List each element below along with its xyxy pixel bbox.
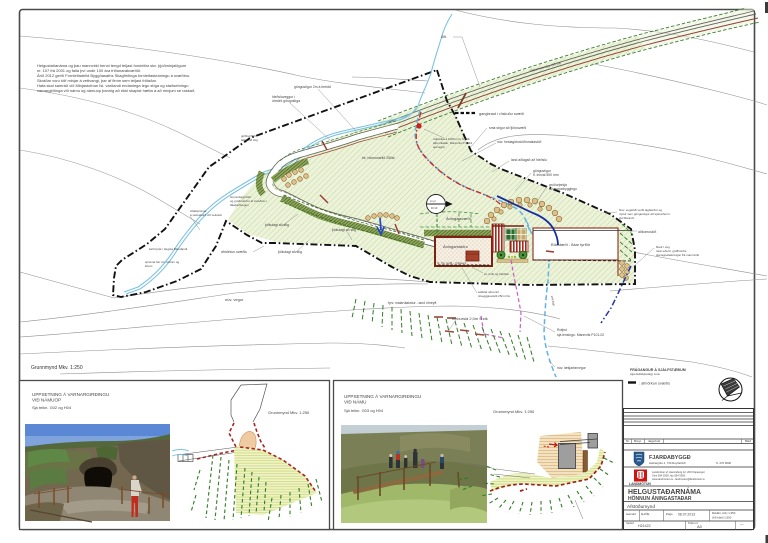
svg-text:sv. timb og hleðsla: sv. timb og hleðsla <box>484 271 509 276</box>
svg-text:lútum: lútum <box>145 264 153 268</box>
svg-text:LANDMÓTUN: LANDMÓTUN <box>629 481 651 486</box>
svg-text:sjá Mannvit: sjá Mannvit <box>619 216 634 220</box>
svg-text:Áningarstaður: Áningarstaður <box>443 244 469 249</box>
svg-text:Hafnargötu 2, 730 Reyðarfirði: Hafnargötu 2, 730 Reyðarfirði <box>649 460 686 465</box>
svg-text:Áningarsvæði: Áningarsvæði <box>446 216 471 221</box>
svg-text:Nr.: Nr. <box>626 439 630 443</box>
svg-text:Sjá teikn. G03 og H04: Sjá teikn. G03 og H04 <box>344 408 384 413</box>
svg-text:N: 7to nx45 - 4 6tww4: N: 7to nx45 - 4 6tww4 <box>437 261 466 265</box>
svg-text:timburslá 2,0m 5 stk: timburslá 2,0m 5 stk <box>452 316 488 321</box>
svg-text:dags/ívaf: dags/ívaf <box>648 439 660 443</box>
svg-text:Breyt.: Breyt. <box>634 439 642 443</box>
svg-text:(A3-blað) 1:500: (A3-blað) 1:500 <box>712 515 732 520</box>
svg-text:útveggjasvæði 25cm frá: útveggjasvæði 25cm frá <box>478 293 510 298</box>
svg-text:smá stígur að fjörusvæði: smá stígur að fjörusvæði <box>489 125 526 130</box>
svg-text:: afmörkun svæðis: : afmörkun svæðis <box>639 381 670 386</box>
svg-text:www.landmotun.is - landmotun: www.landmotun.is - landmotun@landmotun.i… <box>652 477 705 481</box>
svg-text:Verknr.: Verknr. <box>626 521 635 525</box>
svg-text:(sjá deiliskipulag) Lísa: (sjá deiliskipulag) Lísa <box>630 372 660 376</box>
svg-text:varnargirðinga við námu og nám: varnargirðinga við námu og námuop þannig… <box>37 88 195 93</box>
svg-text:Afstöðumynd: Afstöðumynd <box>627 503 655 510</box>
svg-text:HÖNNUN ÁNINGASTAÐAR: HÖNNUN ÁNINGASTAÐAR <box>628 495 692 502</box>
svg-text:fláa/jarðvegun: fláa/jarðvegun <box>230 202 249 207</box>
svg-text:Rotþró: Rotþró <box>557 328 567 332</box>
svg-text:Hannað: Hannað <box>626 511 636 516</box>
svg-text:fyrv. malarútakstur - land óhr: fyrv. malarútakstur - land óhreyft <box>388 301 436 305</box>
svg-text:Sjá teikn. G02 og H04: Sjá teikn. G02 og H04 <box>32 405 72 410</box>
svg-text:Landmótun sf, Hamraborg 12, 20: Landmótun sf, Hamraborg 12, 200 Kópavogu… <box>652 470 705 474</box>
svg-text:Grunnmynd Mkv. 1:250: Grunnmynd Mkv. 1:250 <box>268 410 310 415</box>
svg-text:A0: A0 <box>697 524 703 529</box>
svg-text:Sími 554 5300, fax 554 5360: Sími 554 5300, fax 554 5360 <box>652 474 686 478</box>
svg-text:afmörkun svæðis: afmörkun svæðis <box>221 249 247 254</box>
svg-text:VIÐ NÁMU: VIÐ NÁMU <box>344 399 366 405</box>
svg-text:UPPSETNING Á VARNARGIRÐINGU: UPPSETNING Á VARNARGIRÐINGU <box>344 393 421 399</box>
svg-text:aðkomuslóð: aðkomuslóð <box>638 229 656 234</box>
svg-text:sjá lagnateikningar frá mannvi: sjá lagnateikningar frá mannvirki <box>656 253 699 257</box>
svg-text:þH/ÓE: þH/ÓE <box>641 511 650 516</box>
svg-text:Grunnmynd Mkv. 1:250: Grunnmynd Mkv. 1:250 <box>31 365 83 371</box>
svg-text:Dags.: Dags. <box>666 512 674 516</box>
svg-text:Mælikv. (A1) 1:250: Mælikv. (A1) 1:250 <box>712 511 736 515</box>
svg-text:göngustígur 2m á breidd: göngustígur 2m á breidd <box>294 85 331 89</box>
svg-text:fl. innval 500 mm: fl. innval 500 mm <box>533 173 559 177</box>
svg-text:að sumarbyggingu: að sumarbyggingu <box>549 186 577 191</box>
svg-text:útmörk göngustíga: útmörk göngustíga <box>272 99 300 103</box>
svg-text:UPPSETNING Á VARNARGIRÐINGU: UPPSETNING Á VARNARGIRÐINGU <box>32 391 109 397</box>
svg-text:sn.pl: sn.pl <box>430 199 436 203</box>
svg-text:sjá lensingu. Mannvits P101-02: sjá lensingu. Mannvits P101-02 <box>557 333 604 337</box>
svg-text:08.07.2013: 08.07.2013 <box>678 513 695 517</box>
svg-text:H21422: H21422 <box>638 524 651 528</box>
svg-text:bk. hönnunarlið 250al: bk. hönnunarlið 250al <box>362 155 395 160</box>
svg-text:VIÐ NÁMUOP: VIÐ NÁMUOP <box>32 397 61 403</box>
svg-text:núv. lækjarfarvegur: núv. lækjarfarvegur <box>557 366 587 370</box>
svg-text:núv. vegur: núv. vegur <box>225 297 244 302</box>
svg-text:þökulagt að stíg: þökulagt að stíg <box>265 222 289 227</box>
svg-text:Álft.: Álft. <box>441 35 447 39</box>
svg-text:R=10: R=10 <box>431 206 438 210</box>
svg-text:HELGUSTAÐARNÁMA: HELGUSTAÐARNÁMA <box>628 487 701 496</box>
svg-text:gangbraut í röskuðu svæði: gangbraut í röskuðu svæði <box>479 111 524 116</box>
svg-text:núv. hestagötuslóð/smalaslóð: núv. hestagötuslóð/smalaslóð <box>497 139 542 144</box>
svg-text:á veituskurð við veitulok: á veituskurð við veitulok <box>190 212 222 217</box>
svg-text:Bílastæði - fláar tyrfðir: Bílastæði - fláar tyrfðir <box>551 242 591 247</box>
svg-text:land aðlagað að hleðslu: land aðlagað að hleðslu <box>511 157 547 162</box>
svg-text:sjá lagnir: sjá lagnir <box>433 145 445 149</box>
svg-text:Blað: Blað <box>745 438 751 443</box>
svg-text:Grunnmynd Mkv. 1:250: Grunnmynd Mkv. 1:250 <box>493 409 535 414</box>
svg-text:kaðmýrar í lægsta Blandandi: kaðmýrar í lægsta Blandandi <box>149 246 188 251</box>
svg-text:þökulagt að stíg: þökulagt að stíg <box>278 249 302 254</box>
svg-text:S: 470 9000: S: 470 9000 <box>716 461 732 465</box>
svg-text:þökulagt að stíg: þökulagt að stíg <box>332 227 356 232</box>
svg-text:áfast við stíg: áfast við stíg <box>241 137 258 142</box>
